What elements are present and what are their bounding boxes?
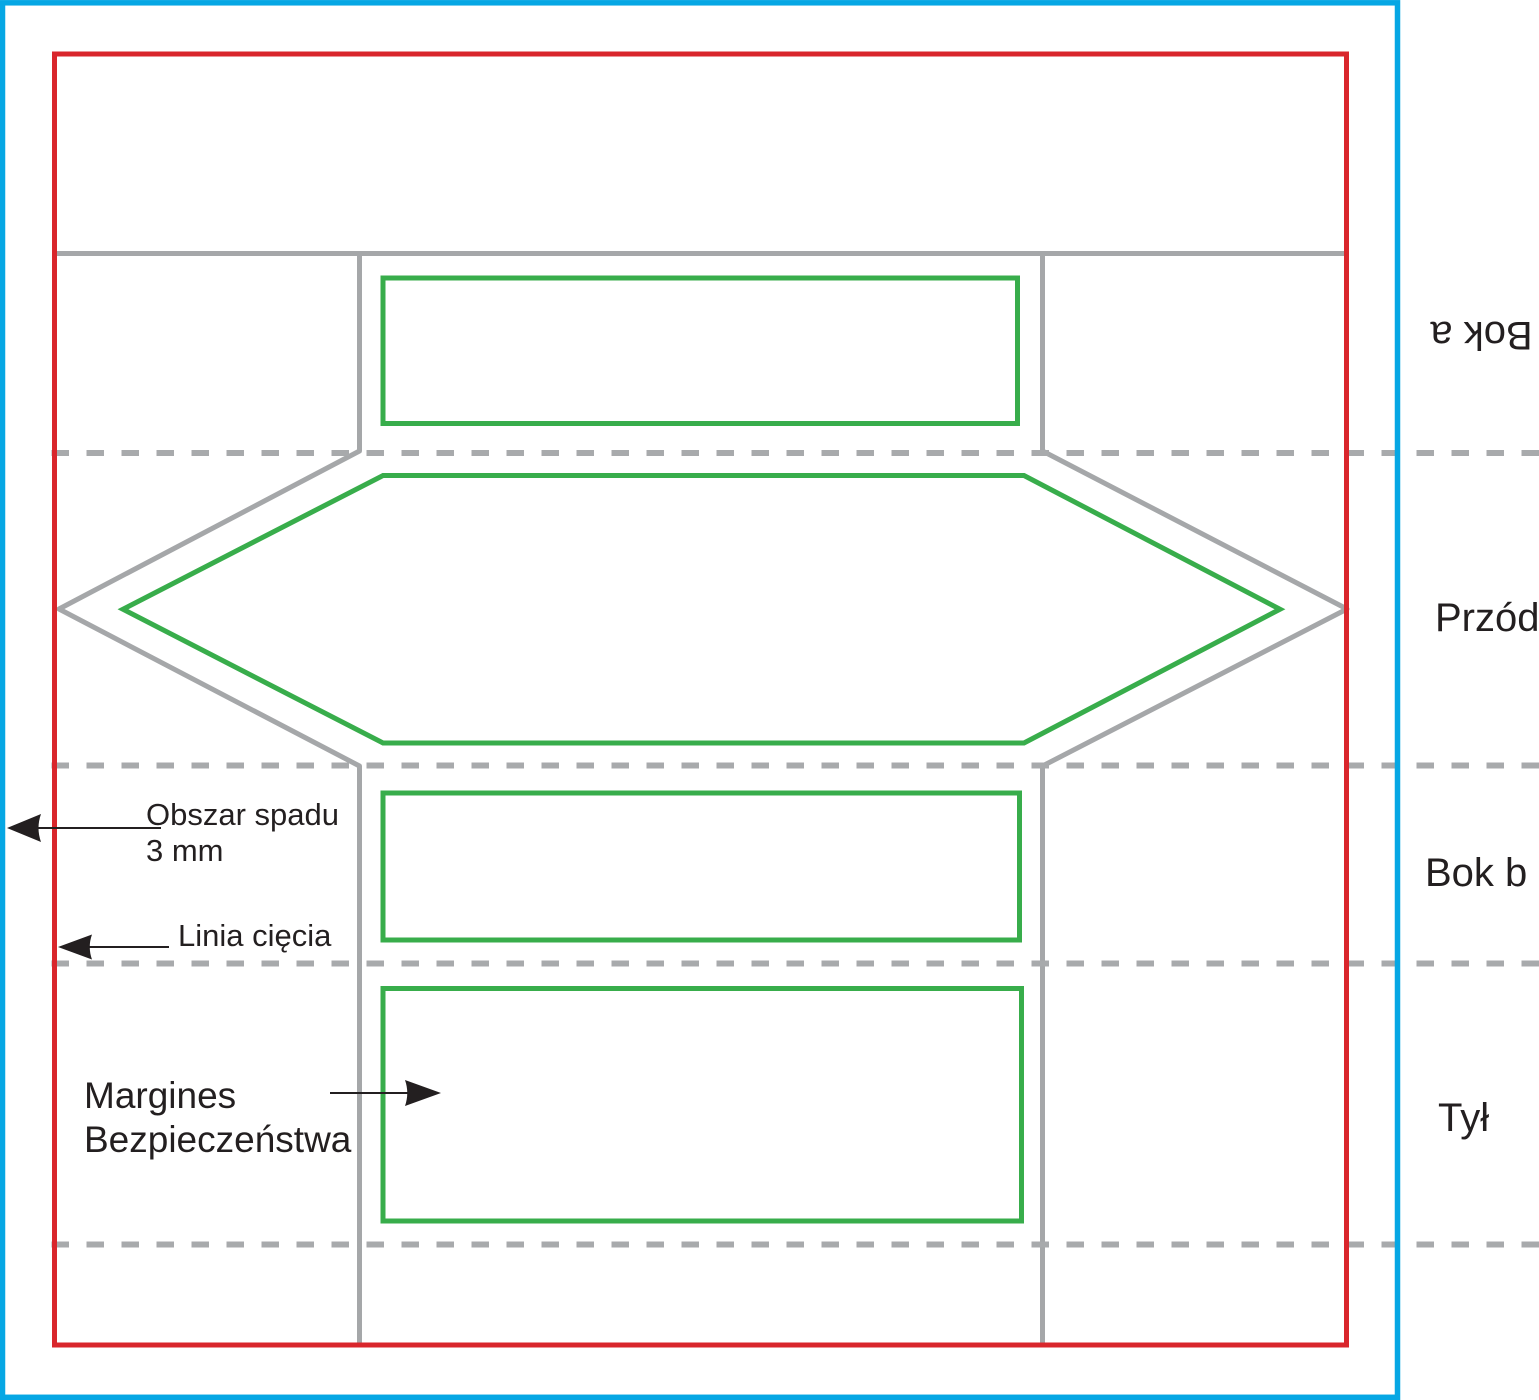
svg-text:Bezpieczeństwa: Bezpieczeństwa bbox=[84, 1119, 352, 1160]
svg-text:Margines: Margines bbox=[84, 1075, 236, 1116]
svg-text:Obszar spadu: Obszar spadu bbox=[146, 797, 339, 832]
svg-text:Bok b: Bok b bbox=[1425, 851, 1527, 895]
svg-text:Linia cięcia: Linia cięcia bbox=[178, 918, 332, 953]
svg-text:3 mm: 3 mm bbox=[146, 833, 224, 868]
svg-text:Przód: Przód bbox=[1435, 596, 1539, 640]
svg-text:Tył: Tył bbox=[1438, 1096, 1489, 1140]
svg-text:Bok a: Bok a bbox=[1430, 313, 1533, 357]
